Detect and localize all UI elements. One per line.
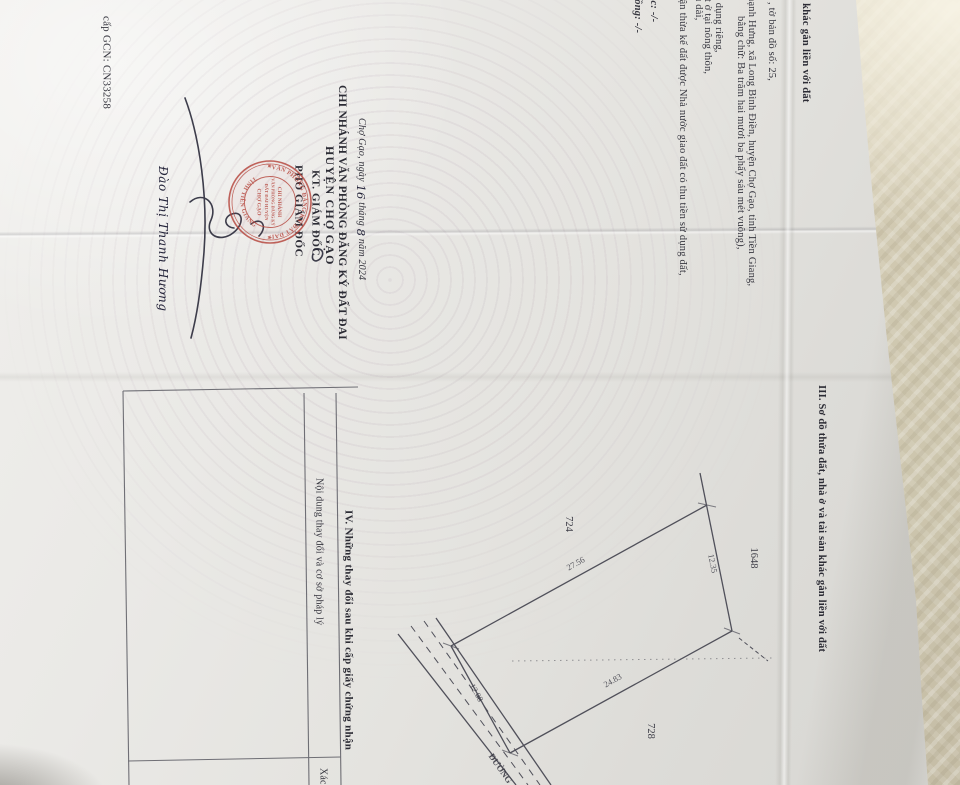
edge-length-right: 12.35 [706, 553, 719, 574]
section3-header: III. Sơ đồ thửa đất, nhà ở và tài sản kh… [815, 385, 827, 652]
edge-length-left: 12.08 [468, 682, 486, 704]
sec2-line-origin: hận thừa kế đất được Nhà nước giao đất c… [676, 0, 688, 276]
stamp-star-right-icon: ★ [266, 235, 274, 241]
date-day-handwritten: 16 [354, 184, 368, 199]
issue-number: cấp GCN: CN33258 [100, 16, 113, 109]
table-col1-header: Nội dung thay đổi và cơ sở pháp lý [313, 478, 325, 625]
sec2-line-duration: u dài, [692, 0, 704, 21]
sec2-line-planted-forest: rồng: -/- [631, 0, 643, 33]
parcel-number-1648: 1648 [748, 548, 759, 569]
road-name-label: ĐƯỜNG [487, 751, 515, 785]
stamp-center-line4: CHỢ GẠO [256, 189, 263, 217]
section2-header-tail: n khác gắn liền với đất [799, 0, 811, 103]
sec2-line-area-words: bằng chữ: Ba trăm hai mươi ba phẩy sáu m… [734, 16, 746, 250]
official-red-stamp: VĂN PHÒNG ĐĂNG KÝ ĐẤT ĐAI TỈNH TIỀN GIAN… [226, 158, 314, 246]
parcel-number-728: 728 [645, 723, 656, 739]
date-line: Chợ Gạo, ngày 16 tháng 8 năm 2024 [354, 118, 367, 280]
stamp-center-line1: CHI NHÁNH [276, 187, 284, 217]
stamp-center-line3: ĐẤT ĐAI HUYỆN [264, 184, 269, 222]
sec2-line-map-sheet: , tờ bản đồ số: 25, [765, 2, 777, 81]
edge-length-top: 27.56 [565, 554, 587, 572]
corner-shadow [0, 735, 125, 785]
photo-of-land-certificate: cấp GCN: CN33258 n khác gắn liền với đất… [0, 0, 960, 785]
sec2-line-address: hạnh Hưng, xã Long Bình Điền, huyện Chợ … [745, 0, 757, 286]
sec2-line-use-form: ử dụng riêng, [712, 0, 724, 53]
table-col2-header: Xác [317, 768, 329, 785]
sec2-line-other-assets: ắc: -/- [647, 0, 659, 22]
date-prefix: Chợ Gạo, ngày [356, 118, 367, 184]
certificate-paper: cấp GCN: CN33258 n khác gắn liền với đất… [0, 0, 960, 785]
parcel-diagram: 724 1648 728 27.56 12.35 24.83 12.08 ĐƯỜ… [380, 460, 780, 785]
date-mid: tháng [356, 200, 367, 229]
edge-length-bottom: 24.83 [602, 671, 624, 689]
stamp-center-line2: VĂN PHÒNG ĐĂNG KÝ [271, 178, 276, 226]
parcel-number-724: 724 [563, 516, 574, 533]
stamp-star-left-icon: ★ [266, 163, 274, 169]
changes-table-lines [90, 380, 370, 785]
date-suffix: năm 2024 [356, 236, 367, 280]
